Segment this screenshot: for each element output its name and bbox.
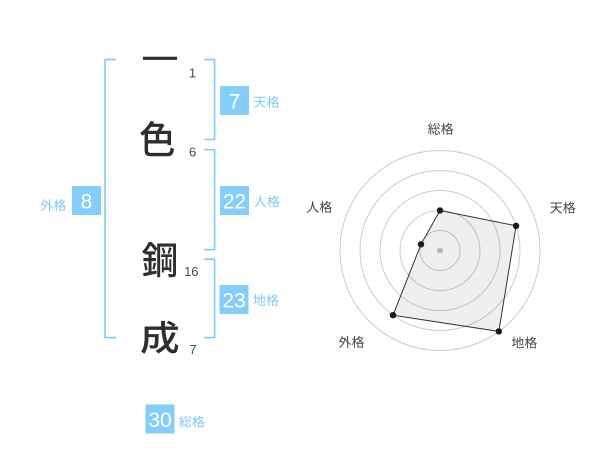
svg-text:8: 8 — [81, 190, 93, 213]
svg-text:7: 7 — [189, 342, 196, 357]
svg-text:22: 22 — [223, 190, 246, 213]
svg-text:1: 1 — [189, 66, 196, 81]
svg-text:7: 7 — [229, 90, 241, 113]
svg-text:6: 6 — [189, 144, 196, 159]
svg-text:23: 23 — [222, 289, 245, 312]
svg-text:16: 16 — [184, 264, 198, 279]
svg-text:30: 30 — [148, 409, 171, 432]
